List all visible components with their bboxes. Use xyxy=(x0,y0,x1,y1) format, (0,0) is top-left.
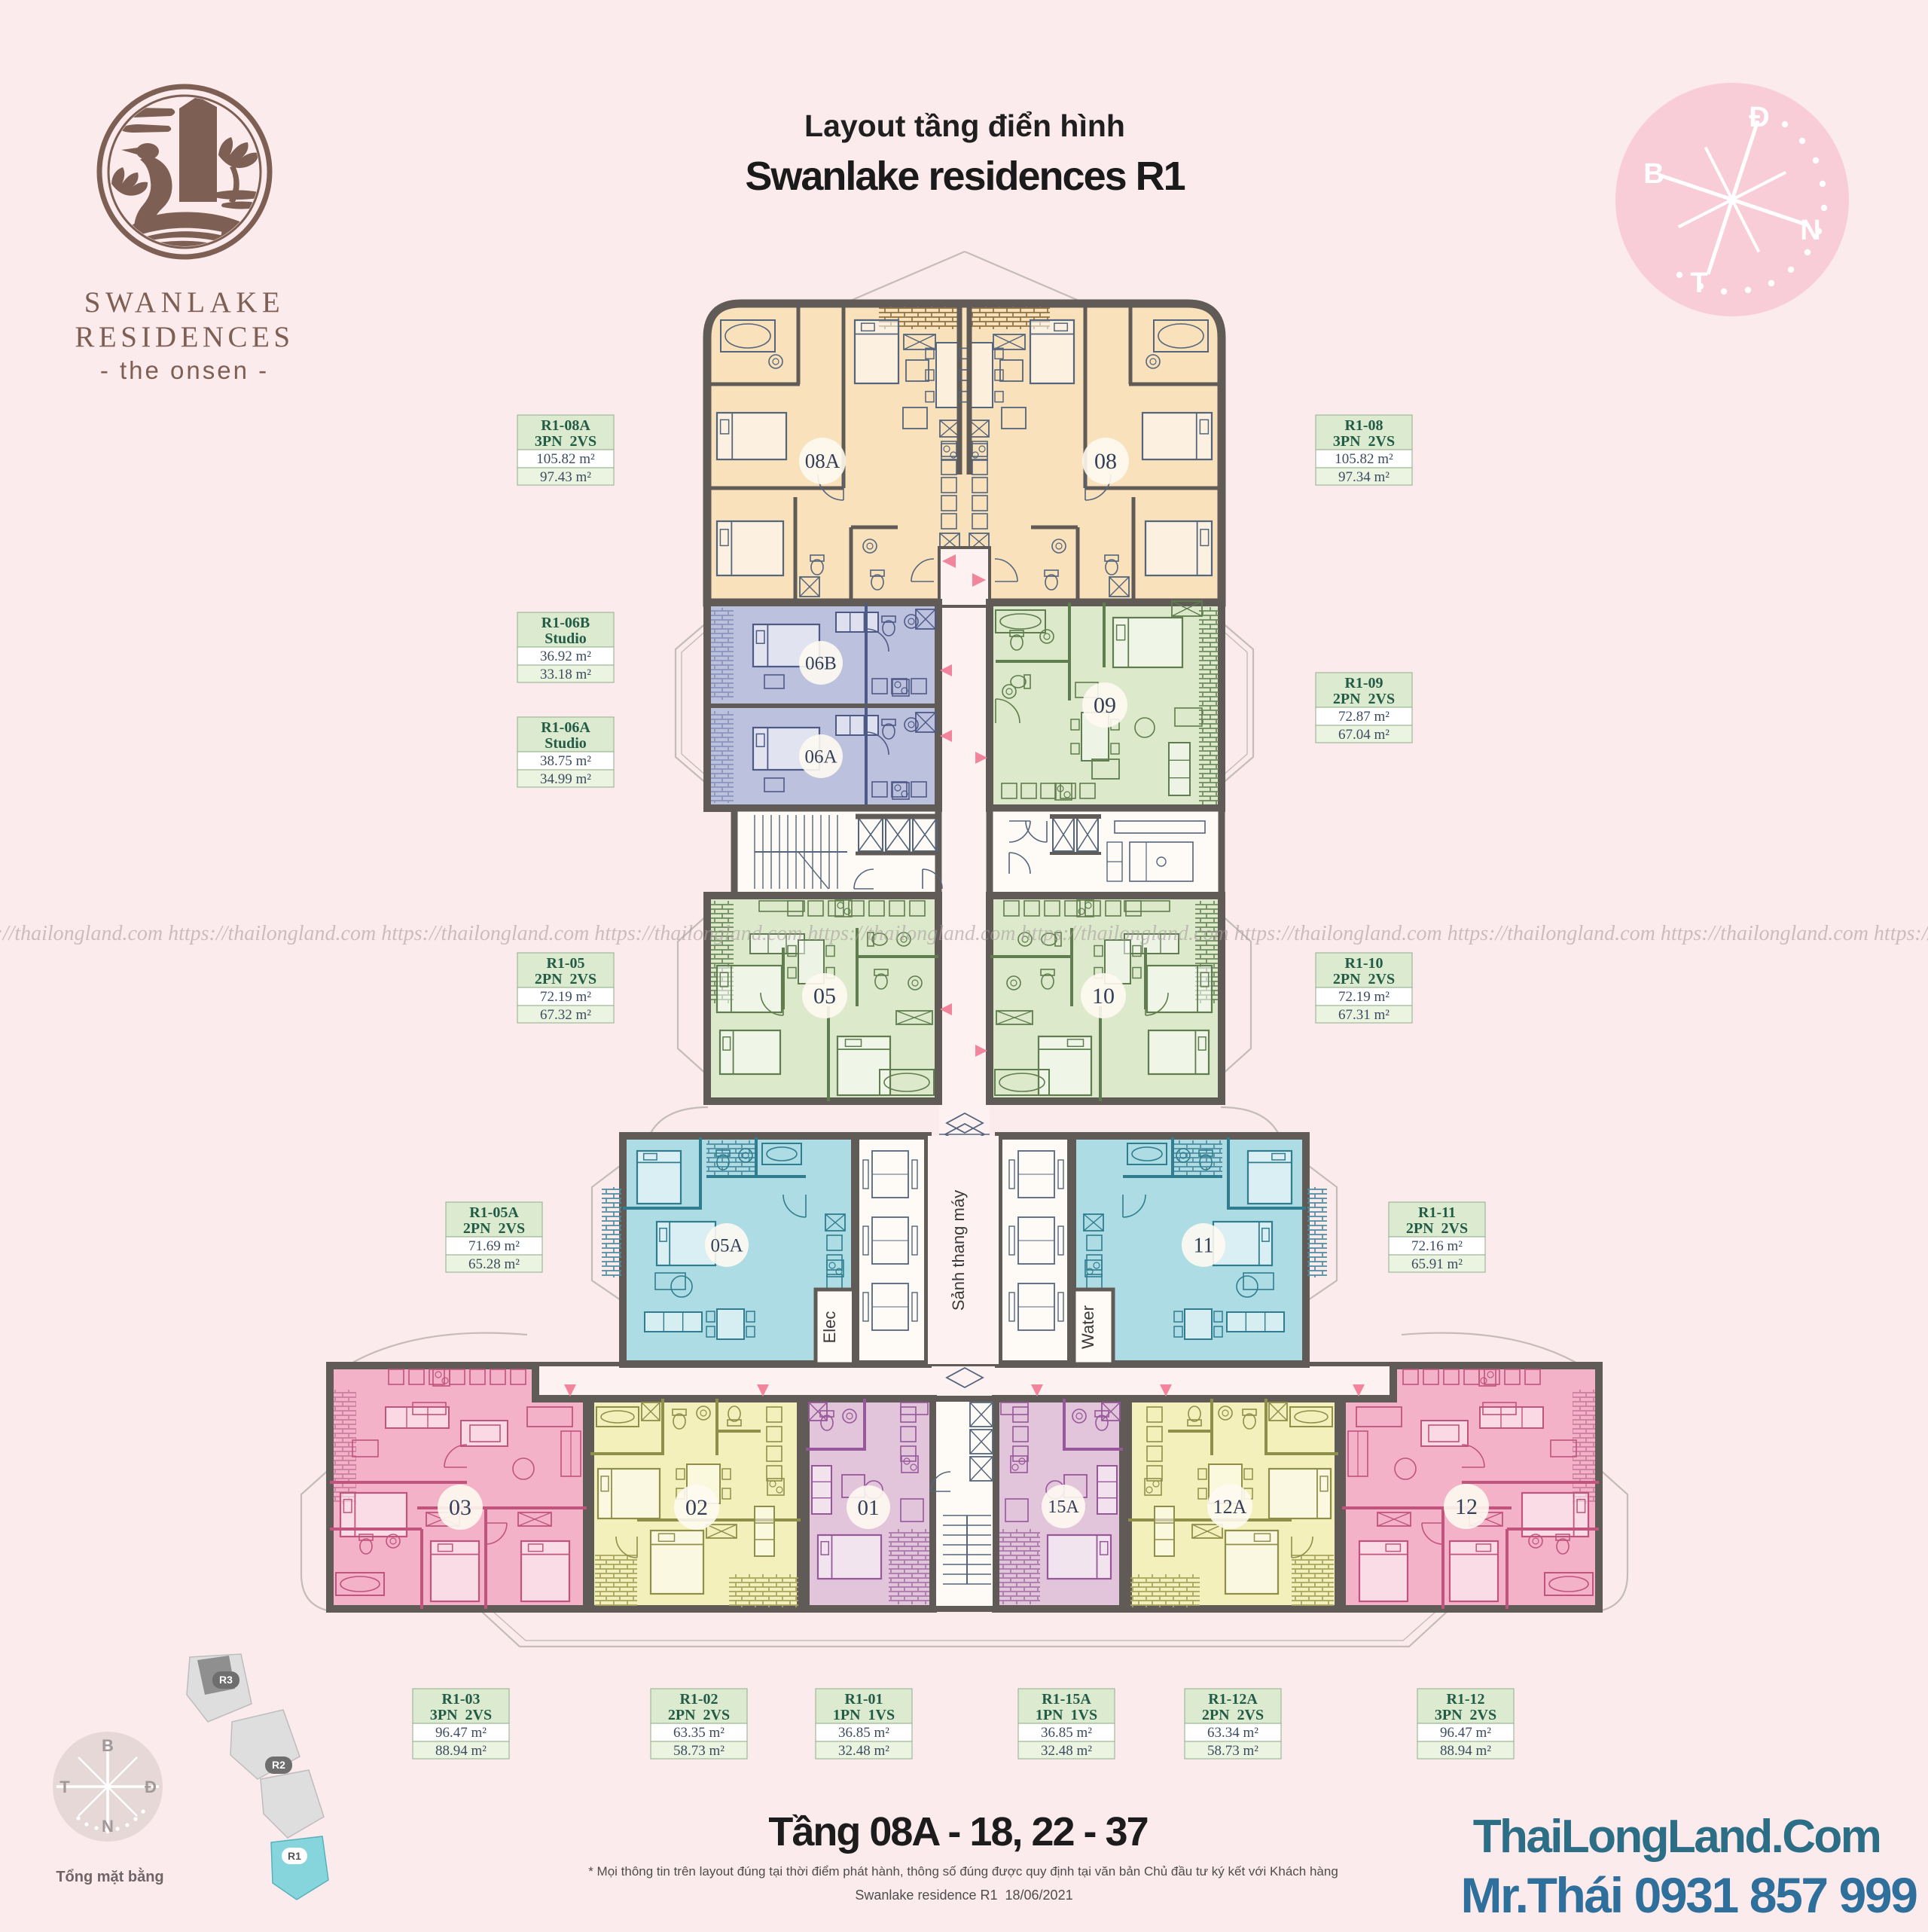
svg-text:1PN 1VS: 1PN 1VS xyxy=(1036,1707,1097,1723)
svg-text:65.91 m²: 65.91 m² xyxy=(1411,1256,1463,1272)
svg-text:12: 12 xyxy=(1455,1494,1478,1519)
svg-text:Đ: Đ xyxy=(145,1778,157,1796)
svg-text:N: N xyxy=(102,1817,114,1836)
svg-text:Studio: Studio xyxy=(545,735,587,752)
svg-text:72.87 m²: 72.87 m² xyxy=(1338,709,1390,725)
svg-text:105.82 m²: 105.82 m² xyxy=(536,451,595,467)
svg-text:R3: R3 xyxy=(219,1674,233,1686)
svg-text:R1-08A: R1-08A xyxy=(541,417,590,434)
svg-text:72.19 m²: 72.19 m² xyxy=(540,989,591,1005)
svg-text:T: T xyxy=(1690,267,1707,299)
svg-text:96.47 m²: 96.47 m² xyxy=(435,1725,487,1741)
svg-text:2PN 2VS: 2PN 2VS xyxy=(1333,691,1395,707)
svg-text:RESIDENCES: RESIDENCES xyxy=(75,321,294,353)
svg-text:3PN 2VS: 3PN 2VS xyxy=(1435,1707,1496,1723)
svg-text:Water: Water xyxy=(1078,1305,1097,1349)
svg-text:* Mọi thông tin trên layout đú: * Mọi thông tin trên layout đúng tại thờ… xyxy=(588,1864,1338,1879)
svg-text:97.43 m²: 97.43 m² xyxy=(540,469,591,485)
svg-text:63.35 m²: 63.35 m² xyxy=(673,1725,725,1741)
svg-text:2PN 2VS: 2PN 2VS xyxy=(535,971,596,987)
svg-text:58.73 m²: 58.73 m² xyxy=(673,1743,725,1759)
svg-text:R1-06B: R1-06B xyxy=(541,615,590,631)
svg-text:Swanlake residences R1: Swanlake residences R1 xyxy=(745,154,1185,199)
svg-text:3PN 2VS: 3PN 2VS xyxy=(430,1707,492,1723)
svg-text:R2: R2 xyxy=(272,1759,285,1771)
svg-text:2PN 2VS: 2PN 2VS xyxy=(1406,1220,1468,1237)
svg-text:B: B xyxy=(1643,158,1664,190)
svg-text:SWANLAKE: SWANLAKE xyxy=(84,286,285,319)
svg-text:11: 11 xyxy=(1194,1235,1214,1258)
svg-text:32.48 m²: 32.48 m² xyxy=(1041,1743,1092,1759)
svg-text:R1-15A: R1-15A xyxy=(1042,1691,1091,1708)
svg-text:R1-01: R1-01 xyxy=(844,1691,883,1708)
svg-text:03: 03 xyxy=(449,1495,471,1520)
svg-text:N: N xyxy=(1800,215,1820,246)
svg-text:36.92 m²: 36.92 m² xyxy=(540,649,591,664)
svg-text:Studio: Studio xyxy=(545,630,587,647)
svg-text:06A: 06A xyxy=(804,747,837,768)
svg-text:R1-12: R1-12 xyxy=(1446,1691,1484,1708)
svg-text:- the onsen -: - the onsen - xyxy=(100,356,269,384)
svg-text:72.19 m²: 72.19 m² xyxy=(1338,989,1390,1005)
svg-text:2PN 2VS: 2PN 2VS xyxy=(463,1220,525,1237)
svg-text:05: 05 xyxy=(813,984,836,1009)
svg-text:36.85 m²: 36.85 m² xyxy=(1041,1725,1092,1741)
svg-text:Đ: Đ xyxy=(1749,102,1769,133)
svg-text:12A: 12A xyxy=(1213,1496,1247,1518)
svg-text:34.99 m²: 34.99 m² xyxy=(540,771,591,787)
svg-text:71.69 m²: 71.69 m² xyxy=(468,1238,520,1254)
svg-text:Swanlake residence R1 18/06/2: Swanlake residence R1 18/06/2021 xyxy=(855,1888,1072,1903)
svg-text:67.32 m²: 67.32 m² xyxy=(540,1007,591,1023)
svg-text:R1-02: R1-02 xyxy=(679,1691,718,1708)
svg-text:T: T xyxy=(59,1778,70,1796)
svg-text:63.34 m²: 63.34 m² xyxy=(1207,1725,1258,1741)
svg-text:33.18 m²: 33.18 m² xyxy=(540,667,591,682)
svg-text:R1-06A: R1-06A xyxy=(541,719,590,736)
svg-text:3PN 2VS: 3PN 2VS xyxy=(1333,433,1395,450)
svg-text:https://thailongland.com https: https://thailongland.com https://thailon… xyxy=(0,922,1928,945)
svg-text:32.48 m²: 32.48 m² xyxy=(838,1743,889,1759)
svg-text:08: 08 xyxy=(1094,449,1117,474)
svg-text:Layout tầng điển hình: Layout tầng điển hình xyxy=(804,108,1125,143)
svg-text:R1-05A: R1-05A xyxy=(469,1204,519,1221)
svg-text:08A: 08A xyxy=(805,450,840,472)
svg-text:R1-08: R1-08 xyxy=(1344,417,1383,434)
svg-text:Tổng mặt bằng: Tổng mặt bằng xyxy=(56,1867,163,1885)
svg-text:15A: 15A xyxy=(1048,1497,1079,1517)
svg-text:1PN 1VS: 1PN 1VS xyxy=(833,1707,895,1723)
svg-text:36.85 m²: 36.85 m² xyxy=(838,1725,889,1741)
svg-text:2PN 2VS: 2PN 2VS xyxy=(1333,971,1395,987)
svg-text:R1-09: R1-09 xyxy=(1344,675,1383,691)
svg-text:88.94 m²: 88.94 m² xyxy=(1440,1743,1491,1759)
svg-text:05A: 05A xyxy=(710,1236,743,1256)
svg-text:65.28 m²: 65.28 m² xyxy=(468,1256,520,1272)
svg-text:Sảnh thang máy: Sảnh thang máy xyxy=(949,1190,968,1311)
svg-text:09: 09 xyxy=(1094,693,1116,718)
svg-text:R1-05: R1-05 xyxy=(546,955,584,972)
svg-text:R1-12A: R1-12A xyxy=(1208,1691,1258,1708)
svg-text:2PN 2VS: 2PN 2VS xyxy=(668,1707,730,1723)
svg-text:97.34 m²: 97.34 m² xyxy=(1338,469,1390,485)
svg-text:B: B xyxy=(102,1736,114,1755)
svg-text:67.31 m²: 67.31 m² xyxy=(1338,1007,1390,1023)
svg-text:38.75 m²: 38.75 m² xyxy=(540,753,591,769)
svg-text:Mr.Thái 0931 857 999: Mr.Thái 0931 857 999 xyxy=(1460,1867,1917,1923)
svg-text:R1-10: R1-10 xyxy=(1344,955,1383,972)
svg-text:58.73 m²: 58.73 m² xyxy=(1207,1743,1258,1759)
svg-text:ThaiLongLand.Com: ThaiLongLand.Com xyxy=(1473,1811,1880,1863)
svg-text:R1-03: R1-03 xyxy=(441,1691,480,1708)
svg-text:96.47 m²: 96.47 m² xyxy=(1440,1725,1491,1741)
svg-text:R1: R1 xyxy=(288,1850,301,1862)
svg-text:Elec: Elec xyxy=(820,1311,839,1344)
svg-text:R1-11: R1-11 xyxy=(1418,1204,1456,1221)
svg-text:06B: 06B xyxy=(805,654,837,674)
svg-text:105.82 m²: 105.82 m² xyxy=(1335,451,1393,467)
svg-text:01: 01 xyxy=(858,1496,880,1520)
svg-text:72.16 m²: 72.16 m² xyxy=(1411,1238,1463,1254)
svg-text:67.04 m²: 67.04 m² xyxy=(1338,727,1390,743)
svg-text:10: 10 xyxy=(1092,984,1115,1009)
svg-text:Tầng 08A - 18, 22 - 37: Tầng 08A - 18, 22 - 37 xyxy=(768,1809,1147,1854)
svg-text:2PN 2VS: 2PN 2VS xyxy=(1202,1707,1264,1723)
svg-text:02: 02 xyxy=(685,1495,708,1520)
svg-text:88.94 m²: 88.94 m² xyxy=(435,1743,487,1759)
svg-text:3PN 2VS: 3PN 2VS xyxy=(535,433,596,450)
